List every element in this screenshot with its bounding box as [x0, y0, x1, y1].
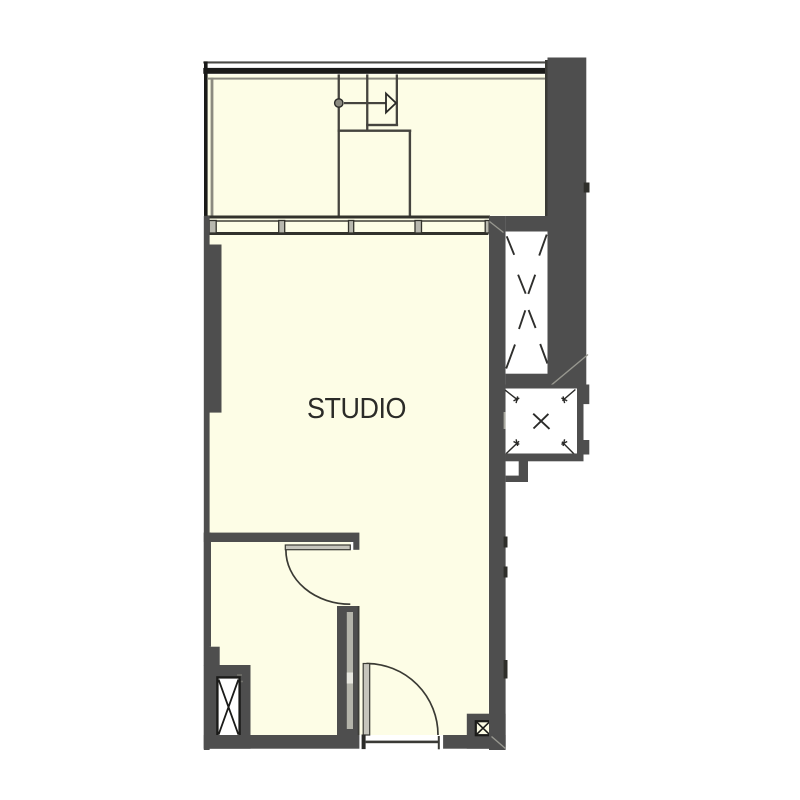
svg-text:STUDIO: STUDIO [307, 393, 406, 425]
